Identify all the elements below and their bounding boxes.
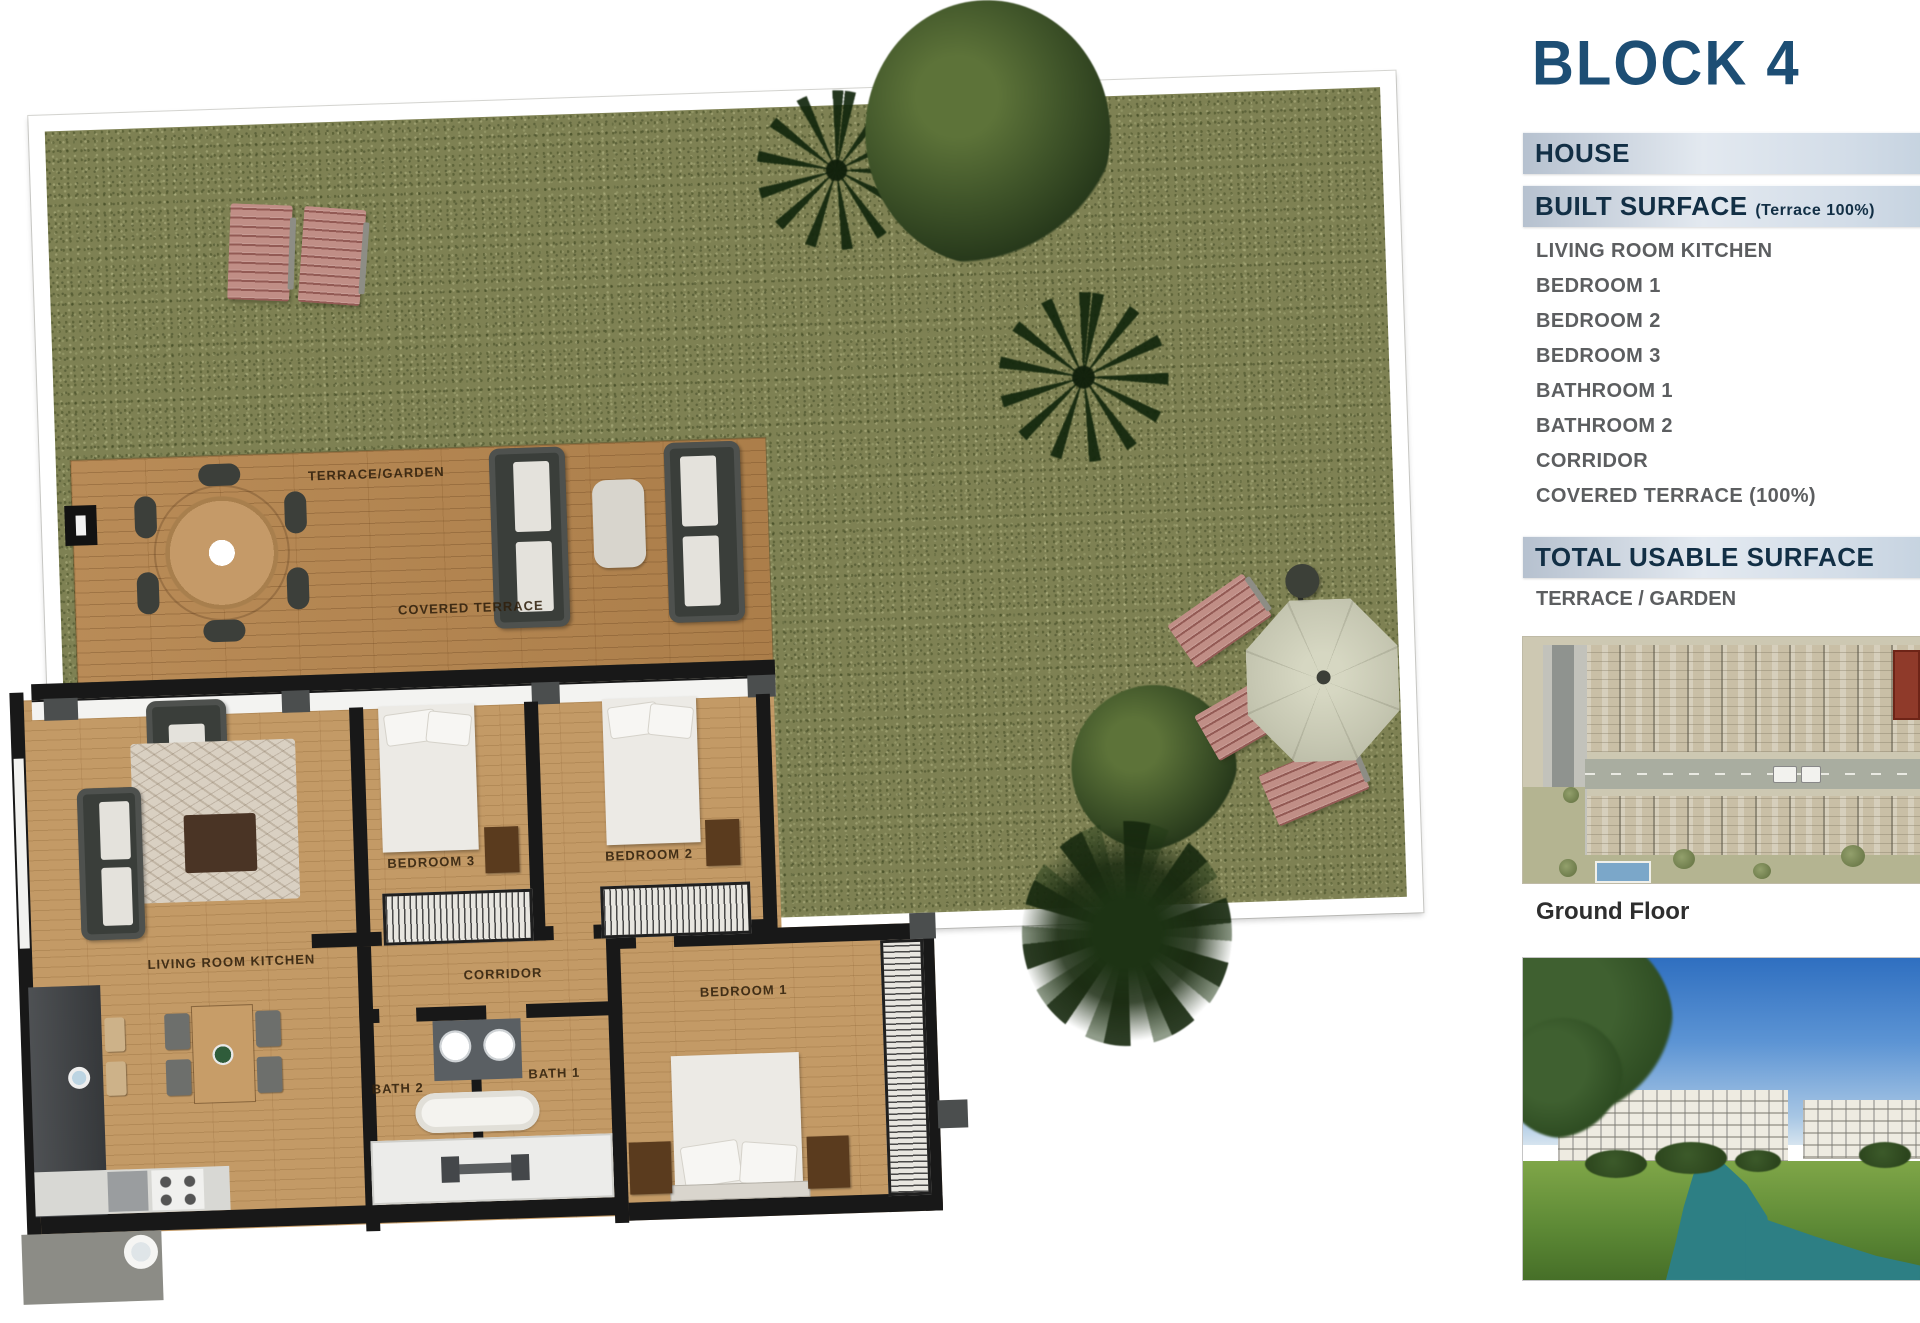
outdoor-coffee-table bbox=[592, 479, 647, 569]
wall-post bbox=[281, 690, 310, 713]
stove bbox=[151, 1169, 204, 1211]
siteplan-road bbox=[1585, 759, 1920, 789]
outdoor-chair bbox=[136, 572, 159, 615]
room-label-bedroom2: BEDROOM 2 bbox=[605, 846, 693, 864]
total-usable-surface-bar: TOTAL USABLE SURFACE 1 bbox=[1523, 536, 1920, 578]
siteplan-tree-icon bbox=[1841, 845, 1865, 867]
house-header-label: HOUSE bbox=[1535, 138, 1630, 169]
outdoor-chair bbox=[286, 567, 309, 610]
room-label-bedroom1: BEDROOM 1 bbox=[700, 982, 788, 1000]
bed bbox=[378, 704, 479, 853]
list-item: BEDROOM 3 bbox=[1536, 345, 1920, 380]
list-item: CORRIDOR bbox=[1536, 450, 1920, 485]
block-title: BLOCK 4 bbox=[1532, 27, 1801, 99]
shower-head bbox=[441, 1156, 460, 1183]
bed bbox=[602, 696, 701, 845]
outdoor-chair bbox=[134, 496, 157, 539]
car-icon bbox=[1801, 766, 1821, 783]
dining-chair bbox=[164, 1013, 190, 1050]
list-item: LIVING ROOM KITCHEN bbox=[1536, 240, 1920, 275]
room-label-bath1: BATH 1 bbox=[528, 1065, 580, 1082]
ground-floor-caption: Ground Floor bbox=[1536, 898, 1689, 926]
photo-bush bbox=[1735, 1150, 1781, 1172]
house-header-bar: HOUSE bbox=[1523, 132, 1920, 174]
site-plan-thumbnail bbox=[1523, 637, 1920, 883]
room-label-bath2: BATH 2 bbox=[371, 1080, 423, 1097]
wall-post bbox=[44, 698, 79, 721]
total-usable-surface-label: TOTAL USABLE SURFACE bbox=[1535, 542, 1874, 573]
photo-bush bbox=[1585, 1150, 1647, 1178]
resort-photo bbox=[1523, 958, 1920, 1280]
outdoor-chair bbox=[203, 619, 246, 642]
list-item: COVERED TERRACE (100%) bbox=[1536, 485, 1920, 520]
nightstand bbox=[705, 819, 741, 866]
wardrobe bbox=[600, 882, 752, 939]
corner-post bbox=[909, 912, 936, 939]
room-surface-list: LIVING ROOM KITCHEN BEDROOM 1 BEDROOM 2 … bbox=[1536, 240, 1920, 520]
dining-chair bbox=[166, 1059, 192, 1096]
outdoor-chair bbox=[284, 491, 307, 534]
siteplan-unit-row bbox=[1585, 796, 1920, 862]
sofa bbox=[77, 787, 146, 941]
highlighted-unit bbox=[1893, 650, 1920, 720]
list-item: BATHROOM 1 bbox=[1536, 380, 1920, 415]
outdoor-chair bbox=[198, 463, 241, 486]
nightstand bbox=[629, 1141, 673, 1194]
wardrobe bbox=[880, 939, 931, 1196]
built-surface-label: BUILT SURFACE (Terrace 100%) bbox=[1535, 191, 1875, 222]
room-label-bedroom3: BEDROOM 3 bbox=[387, 853, 475, 871]
info-sidebar: BLOCK 4 HOUSE BUILT SURFACE (Terrace 100… bbox=[1470, 0, 1920, 1280]
dining-chair bbox=[255, 1010, 281, 1047]
coffee-table bbox=[184, 813, 258, 873]
dining-chair bbox=[257, 1056, 283, 1093]
siteplan-tree-icon bbox=[1563, 787, 1579, 803]
photo-bush bbox=[1655, 1142, 1727, 1174]
terrace-door-slot bbox=[76, 515, 87, 535]
nightstand bbox=[807, 1135, 851, 1188]
corridor-wall bbox=[312, 932, 382, 948]
list-item: BEDROOM 2 bbox=[1536, 310, 1920, 345]
siteplan-tree-icon bbox=[1559, 859, 1577, 877]
siteplan-tree-icon bbox=[1753, 863, 1771, 879]
room-label-corridor: CORRIDOR bbox=[463, 965, 542, 983]
nightstand bbox=[484, 826, 520, 873]
sun-lounger bbox=[298, 206, 367, 306]
oven bbox=[107, 1171, 148, 1212]
exterior-pillar bbox=[937, 1099, 968, 1128]
shower-head bbox=[511, 1154, 530, 1181]
siteplan-tree-icon bbox=[1673, 849, 1695, 869]
terrace-garden-label: TERRACE / GARDEN bbox=[1536, 588, 1736, 611]
list-item: BEDROOM 1 bbox=[1536, 275, 1920, 310]
sun-lounger bbox=[227, 203, 292, 301]
floor-plan-render: TERRACE/GARDEN COVERED TERRACE LIVING RO… bbox=[0, 0, 1483, 1323]
wardrobe bbox=[382, 889, 534, 946]
floorplan-brochure-page: { "sidebar": { "title": "BLOCK 4", "hous… bbox=[0, 0, 1920, 1280]
built-surface-note: (Terrace 100%) bbox=[1755, 202, 1875, 219]
list-item: BATHROOM 2 bbox=[1536, 415, 1920, 450]
siteplan-pool bbox=[1595, 861, 1651, 883]
bathtub bbox=[415, 1090, 540, 1134]
car-icon bbox=[1773, 766, 1797, 783]
photo-bush bbox=[1859, 1142, 1911, 1168]
kitchen-stool bbox=[104, 1017, 125, 1052]
outdoor-sofa bbox=[663, 441, 745, 623]
siteplan-unit-row bbox=[1585, 645, 1920, 752]
built-surface-bar: BUILT SURFACE (Terrace 100%) 1 bbox=[1523, 185, 1920, 227]
bed bbox=[671, 1052, 804, 1198]
kitchen-stool bbox=[106, 1061, 127, 1096]
